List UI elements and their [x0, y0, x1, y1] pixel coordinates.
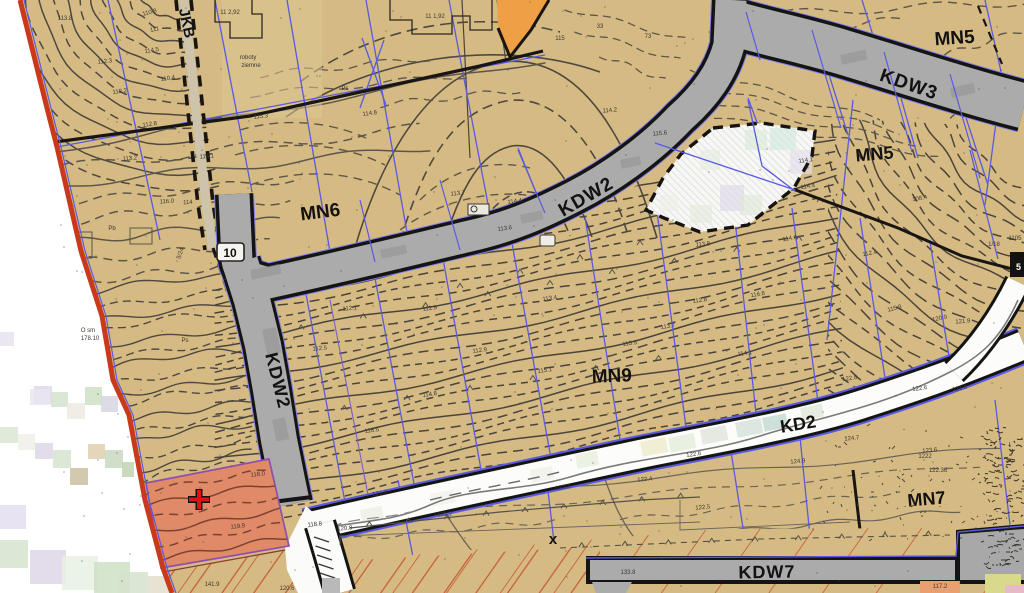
- svg-text:MN7: MN7: [907, 487, 947, 510]
- svg-text:1222: 1222: [918, 454, 932, 460]
- svg-text:116.0: 116.0: [159, 198, 175, 205]
- svg-text:33: 33: [597, 24, 604, 30]
- svg-text:-1105: -1105: [1007, 236, 1023, 242]
- svg-text:114: 114: [183, 200, 194, 207]
- svg-text:117.2: 117.2: [933, 584, 948, 590]
- svg-text:122.36: 122.36: [929, 468, 948, 474]
- svg-text:x: x: [549, 531, 558, 548]
- svg-text:133.8: 133.8: [620, 570, 636, 576]
- svg-text:MN9: MN9: [591, 365, 632, 387]
- svg-text:113.8: 113.8: [58, 16, 73, 22]
- svg-text:120.6: 120.6: [279, 586, 295, 592]
- svg-text:11 1,92: 11 1,92: [425, 14, 445, 20]
- svg-text:O sm: O sm: [81, 328, 95, 334]
- svg-text:178.10: 178.10: [81, 336, 100, 342]
- svg-text:1/18: 1/18: [988, 242, 1000, 248]
- svg-text:Ps: Ps: [181, 338, 188, 344]
- svg-text:KDW7: KDW7: [738, 562, 795, 583]
- svg-text:ziemne: ziemne: [241, 63, 261, 69]
- svg-text:10: 10: [223, 246, 237, 260]
- svg-text:roboty: roboty: [240, 55, 257, 61]
- svg-text:5: 5: [1016, 262, 1021, 272]
- svg-text:73: 73: [645, 34, 652, 40]
- svg-text:Ps: Ps: [341, 86, 348, 92]
- svg-text:MN5: MN5: [855, 142, 895, 165]
- svg-text:11 2,92: 11 2,92: [220, 10, 240, 16]
- svg-text:141.9: 141.9: [204, 582, 220, 588]
- svg-text:MN5: MN5: [934, 27, 976, 51]
- svg-text:115: 115: [555, 36, 565, 42]
- svg-text:Pb: Pb: [108, 226, 116, 232]
